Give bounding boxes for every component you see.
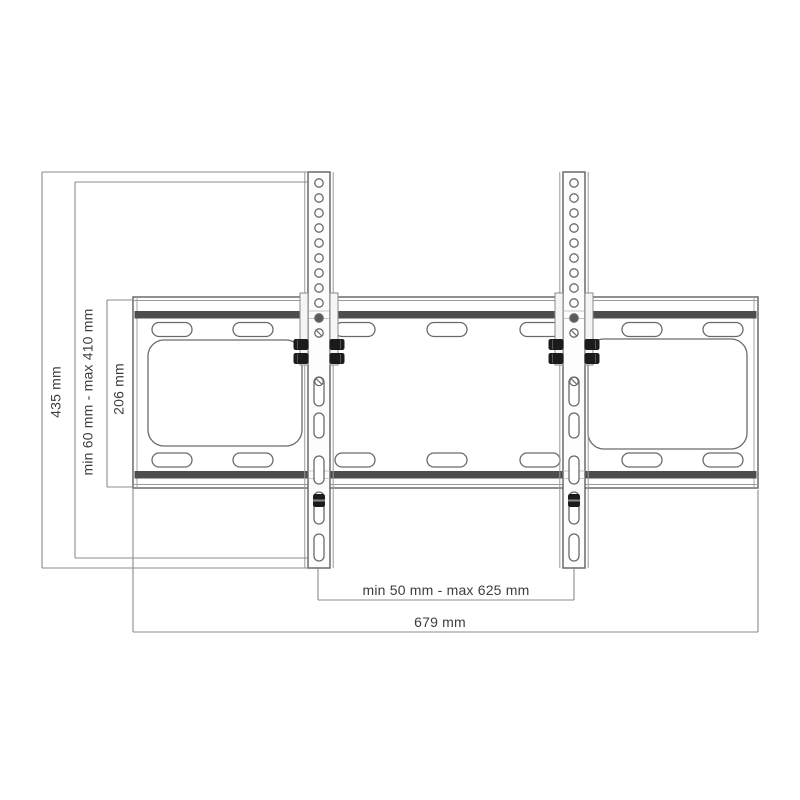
clamp-bolt (585, 353, 600, 364)
wall-mount-dimension-diagram: 435 mm min 60 mm - max 410 mm 206 mm min… (0, 0, 800, 800)
clamp-bolt (330, 353, 345, 364)
plate-slot-bottom (622, 453, 662, 467)
clamp-bolt (294, 353, 309, 364)
plate-slot-bottom (427, 453, 467, 467)
rail-hole (570, 254, 578, 262)
rail-hole (570, 269, 578, 277)
rail-hole (570, 284, 578, 292)
rail-hole (315, 254, 323, 262)
rail-hole (315, 224, 323, 232)
dim-label-total-height: 435 mm (48, 366, 64, 418)
rail-hole (315, 284, 323, 292)
plate-slot-top (520, 323, 560, 337)
rail-slot (314, 456, 324, 484)
plate-band-bottom (135, 471, 757, 479)
rail-hole (570, 314, 578, 322)
clamp-bolt (585, 339, 600, 350)
dim-label-plate-height: 206 mm (111, 363, 127, 415)
plate-slot-top (152, 323, 192, 337)
plate-band-top (135, 311, 757, 319)
plate-slot-bottom (335, 453, 375, 467)
rail-slot (314, 413, 324, 438)
rail-slot (569, 456, 579, 484)
rail-hole (570, 299, 578, 307)
plate-slot-top (233, 323, 273, 337)
plate-emboss-panel-right (588, 339, 747, 449)
rail-slot (569, 534, 579, 561)
rail-hole (570, 224, 578, 232)
dim-label-hole-pattern-height: min 60 mm - max 410 mm (80, 309, 96, 476)
rail-lock-screw-band (313, 500, 325, 502)
rail-hole (570, 194, 578, 202)
drawing-layer (42, 172, 758, 632)
rail-hole (315, 269, 323, 277)
rail-hole (315, 209, 323, 217)
plate-slot-bottom (520, 453, 560, 467)
rail-slot (314, 534, 324, 561)
rail-hole (570, 209, 578, 217)
plate-slot-bottom (152, 453, 192, 467)
plate-slot-bottom (233, 453, 273, 467)
rail-hole (315, 194, 323, 202)
rail-hole (315, 299, 323, 307)
rail-hole (315, 239, 323, 247)
dim-label-total-width: 679 mm (414, 614, 466, 630)
rail-slot (569, 413, 579, 438)
dim-label-hole-pattern-width: min 50 mm - max 625 mm (363, 582, 530, 598)
clamp-bolt (549, 339, 564, 350)
rail-hole (315, 314, 323, 322)
clamp-bolt (330, 339, 345, 350)
rail-hole (315, 179, 323, 187)
rail-hole (570, 179, 578, 187)
plate-slot-bottom (703, 453, 743, 467)
plate-slot-top (427, 323, 467, 337)
plate-slot-top (335, 323, 375, 337)
plate-slot-top (703, 323, 743, 337)
clamp-bolt (549, 353, 564, 364)
rail-lock-screw-band (568, 500, 580, 502)
clamp-bolt (294, 339, 309, 350)
rail-hole (570, 239, 578, 247)
plate-emboss-panel-left (148, 340, 302, 446)
plate-slot-top (622, 323, 662, 337)
